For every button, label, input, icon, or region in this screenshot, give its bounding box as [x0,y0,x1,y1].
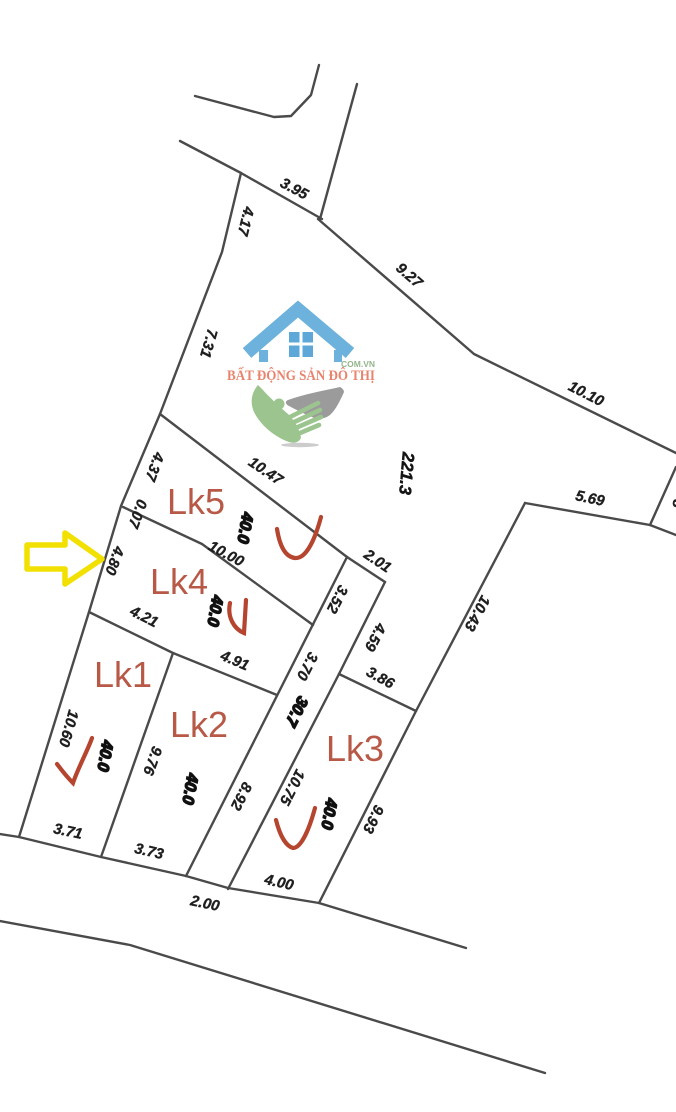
svg-text:BẤT ĐỘNG SẢN ĐÔ THỊ: BẤT ĐỘNG SẢN ĐÔ THỊ [227,367,375,384]
svg-text:Lk4: Lk4 [150,561,208,602]
svg-text:Lk2: Lk2 [170,704,228,745]
svg-text:Lk1: Lk1 [94,654,152,695]
svg-text:Lk5: Lk5 [167,481,225,522]
svg-text:Lk3: Lk3 [326,728,384,769]
svg-text:221.3: 221.3 [395,450,418,496]
